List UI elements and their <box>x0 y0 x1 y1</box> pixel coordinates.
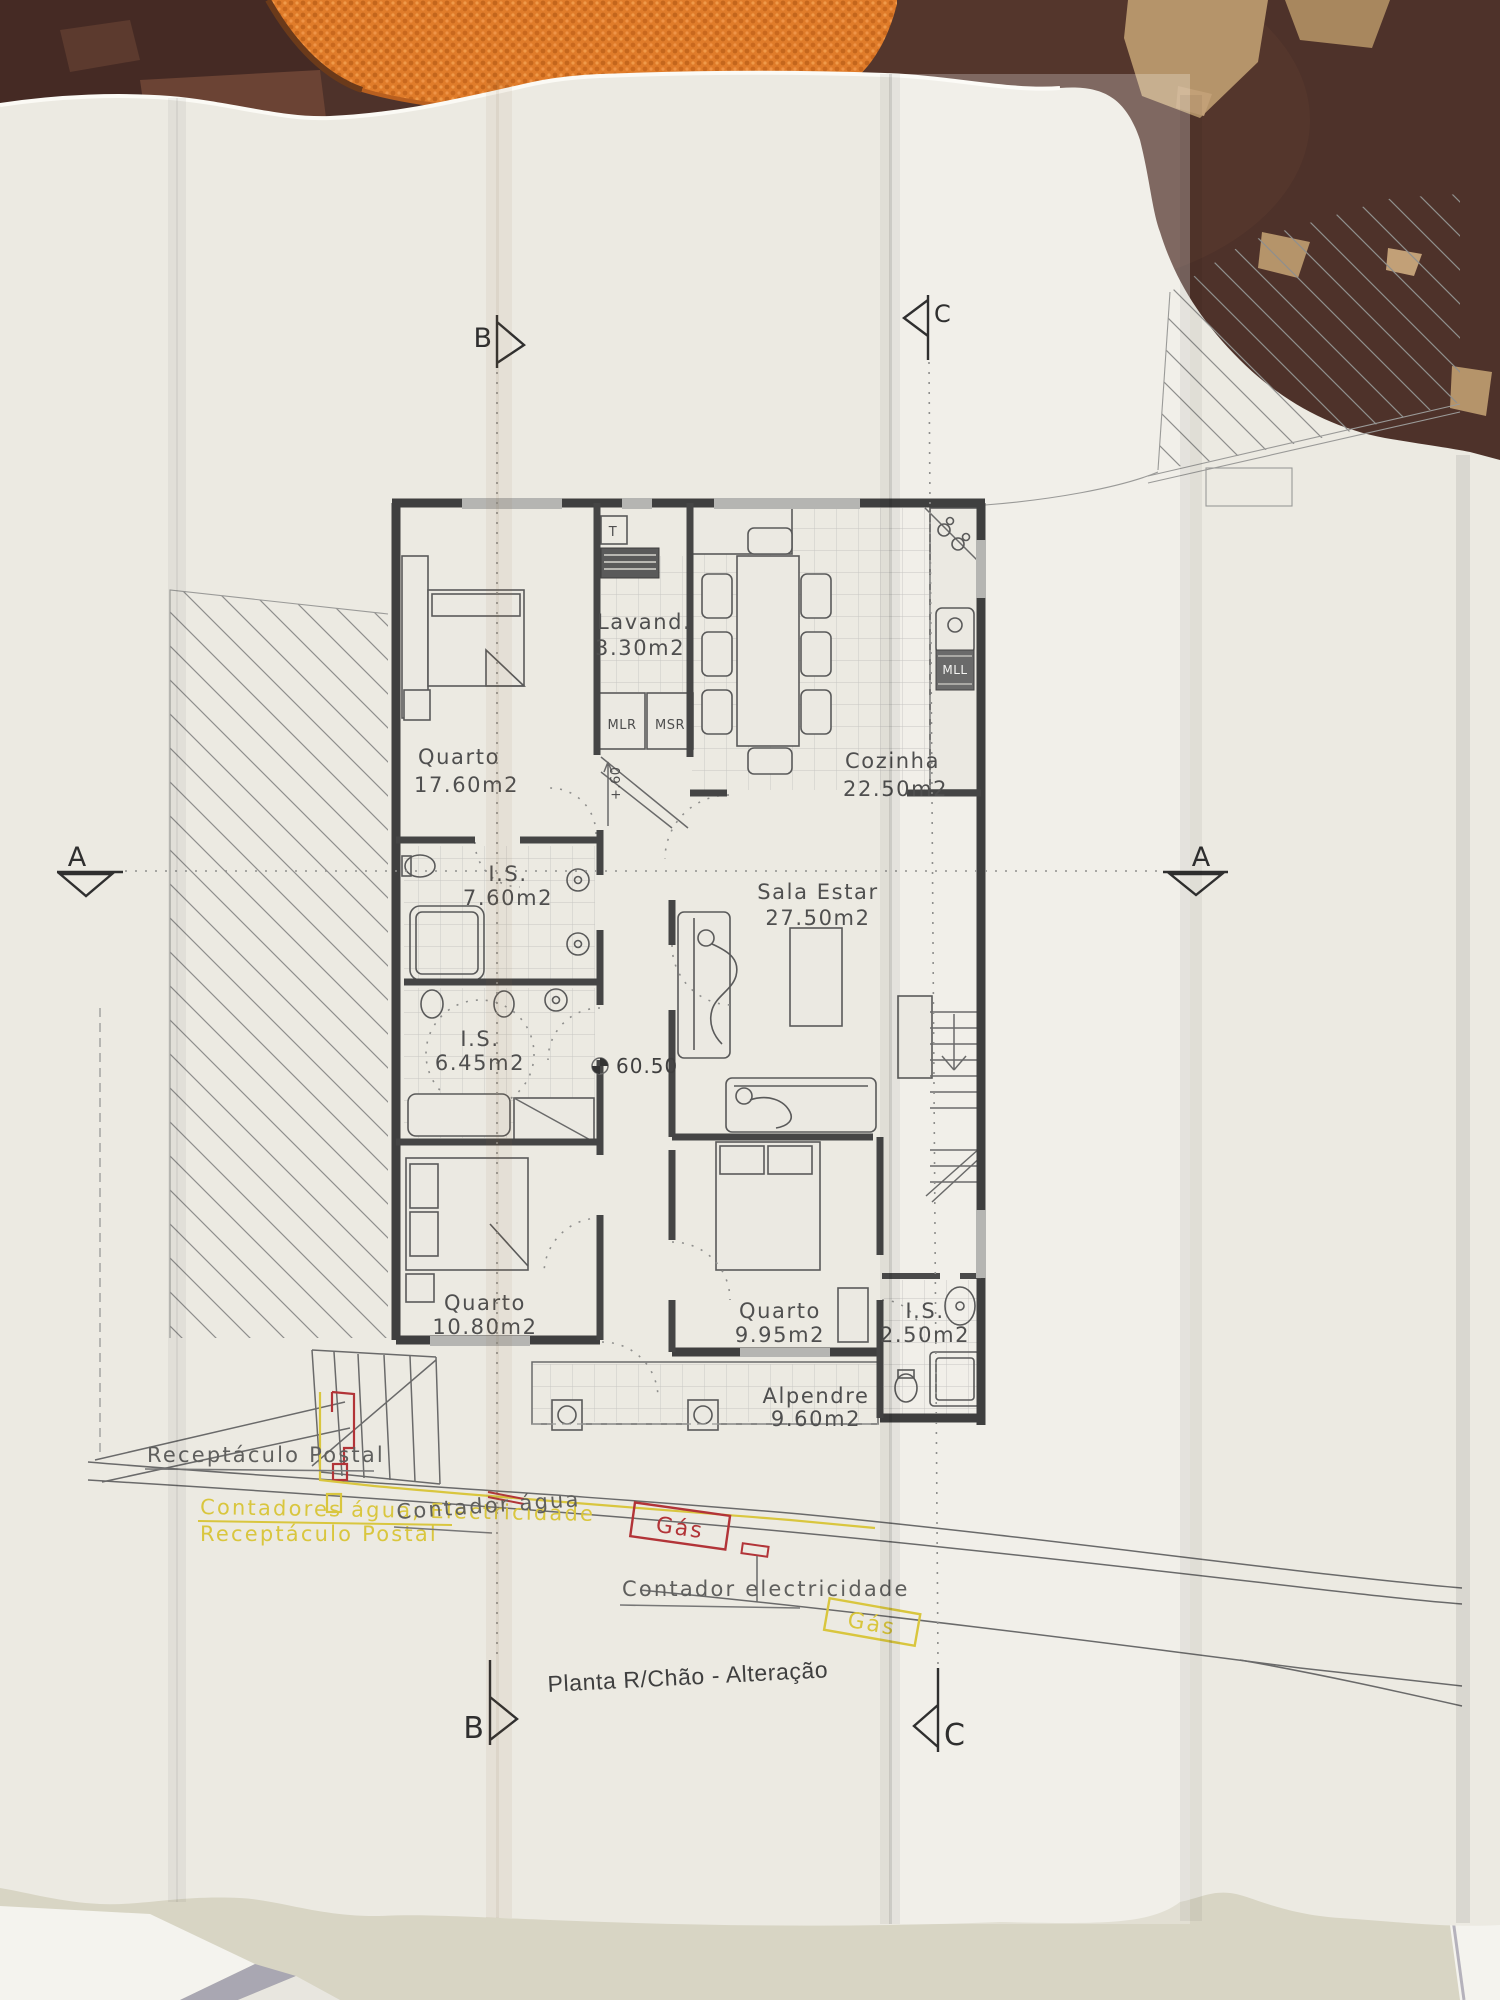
label-quarto-1080-area: 10.80m2 <box>432 1315 537 1339</box>
label-msr: MSR <box>655 718 685 733</box>
label-lavandaria: Lavand. <box>597 610 691 634</box>
label-receptaculo-yellow: Receptáculo Postal <box>200 1522 438 1546</box>
label-sala-estar: Sala Estar <box>757 880 879 904</box>
label-alpendre-area: 9.60m2 <box>771 1407 861 1431</box>
label-is-250: I.S. <box>905 1299 944 1323</box>
section-letter: A <box>68 842 87 873</box>
section-letter: C <box>944 1718 965 1753</box>
label-sala-estar-area: 27.50m2 <box>765 906 870 930</box>
level-marker <box>592 1058 608 1074</box>
label-lavandaria-area: 3.30m2 <box>595 636 685 660</box>
scene: Lavand. 3.30m2 Cozinha 22.50m2 Quarto 17… <box>0 0 1500 2000</box>
hatch-area-left <box>170 590 388 1338</box>
label-t: T <box>608 525 617 540</box>
label-quarto-995: Quarto <box>739 1299 821 1323</box>
label-contador-electricidade: Contador electricidade <box>622 1577 910 1601</box>
label-mll: MLL <box>942 663 967 677</box>
label-quarto-1080: Quarto <box>444 1291 526 1315</box>
label-mlr: MLR <box>608 718 637 733</box>
label-alpendre: Alpendre <box>763 1384 870 1408</box>
photo-of-floor-plan: Lavand. 3.30m2 Cozinha 22.50m2 Quarto 17… <box>0 0 1500 2000</box>
paper-bright-sheet <box>890 74 1190 1924</box>
label-level-6050: 60.50 <box>616 1054 678 1078</box>
section-letter: B <box>463 1711 484 1746</box>
label-quarto-995-area: 9.95m2 <box>735 1323 825 1347</box>
section-letter: C <box>934 300 951 328</box>
label-step-60: +.60 <box>609 766 624 800</box>
